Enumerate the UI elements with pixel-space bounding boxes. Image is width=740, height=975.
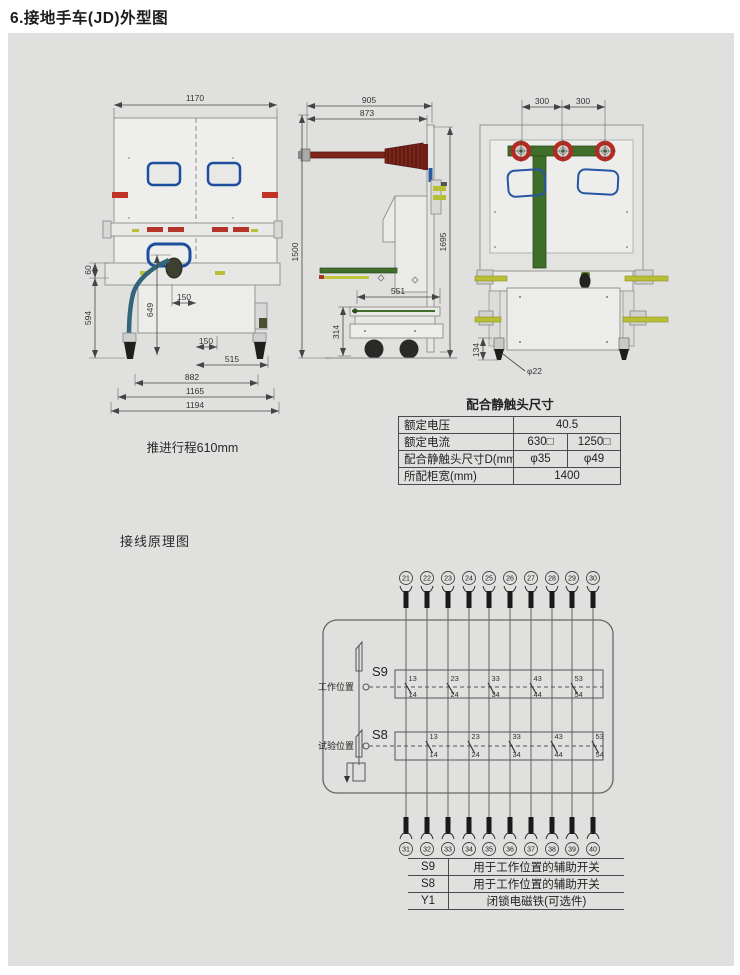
plug-pin xyxy=(446,817,451,834)
dimension-label: 60 xyxy=(83,265,93,275)
wheel-right xyxy=(254,342,266,359)
travel-caption: 推进行程610mm xyxy=(85,437,300,456)
plug-pin xyxy=(446,591,451,608)
s9-pivot xyxy=(363,684,369,690)
contact-terminal-top: 33 xyxy=(513,732,521,741)
work-position-label: 工作位置 xyxy=(318,681,354,692)
row-value: 1400 xyxy=(514,468,621,485)
front-body xyxy=(103,118,282,359)
terminal-number: 40 xyxy=(589,847,597,854)
wiring-schematic: S9 S8 工作位置 试验位置 213122322333243425352636… xyxy=(320,565,620,865)
plug-pin xyxy=(508,817,513,834)
wheel-front xyxy=(365,340,384,359)
dimension-label: 594 xyxy=(83,311,93,325)
terminal-bottom: 32 xyxy=(421,817,434,856)
contact-table-section: 配合静触头尺寸 额定电压 40.5 额定电流 630□ 1250□ 配合静触头尺… xyxy=(398,394,622,485)
position-mechanism xyxy=(344,642,369,783)
legend-code: Y1 xyxy=(408,893,449,910)
dimension-label: 1170 xyxy=(186,93,205,103)
contact-terminal-top: 23 xyxy=(451,674,459,683)
terminal-number: 21 xyxy=(402,576,410,583)
terminal-top: 28 xyxy=(546,572,559,609)
legend-desc: 用于工作位置的辅助开关 xyxy=(449,859,625,876)
wheel-left xyxy=(124,342,136,359)
contact-rollers xyxy=(510,140,616,162)
chassis-band xyxy=(105,263,280,285)
legend-row: S9 用于工作位置的辅助开关 xyxy=(408,859,624,876)
terminal-bottom: 31 xyxy=(400,817,413,856)
terminal-number: 34 xyxy=(465,847,473,854)
s8-label: S8 xyxy=(372,727,388,742)
base-frame xyxy=(350,324,443,338)
table-row: 配合静触头尺寸D(mm) φ35 φ49 xyxy=(399,451,621,468)
dimension-label: 150 xyxy=(199,336,213,346)
rear-body xyxy=(475,125,668,371)
terminal-number: 23 xyxy=(444,576,452,583)
dimension-label: 1194 xyxy=(186,400,205,410)
window-left xyxy=(148,163,180,185)
dimension-label: 314 xyxy=(331,325,341,339)
plug-pin xyxy=(508,591,513,608)
terminal-number: 37 xyxy=(527,847,535,854)
contact-terminal-bottom: 44 xyxy=(555,750,563,759)
plug-pin xyxy=(550,591,555,608)
row-value: φ35 xyxy=(514,451,568,468)
terminal-bottom: 35 xyxy=(483,817,496,856)
contact-terminal-top: 43 xyxy=(534,674,542,683)
ground-bar xyxy=(320,268,397,273)
plug-pin xyxy=(529,591,534,608)
dimension-label: 300 xyxy=(576,96,590,106)
terminal-number: 35 xyxy=(485,847,493,854)
terminal-top: 30 xyxy=(587,572,600,609)
terminal-number: 28 xyxy=(548,576,556,583)
terminal-number: 26 xyxy=(506,576,514,583)
terminal-number: 36 xyxy=(506,847,514,854)
terminal-top: 21 xyxy=(400,572,413,609)
row-value: 630□ xyxy=(514,434,568,451)
terminal-bottom: 38 xyxy=(546,817,559,856)
s8-pivot xyxy=(363,743,369,749)
legend-row: S8 用于工作位置的辅助开关 xyxy=(408,876,624,893)
row-value: φ49 xyxy=(568,451,621,468)
schematic-title: 接线原理图 xyxy=(120,531,190,550)
table-row: 额定电压 40.5 xyxy=(399,417,621,434)
aux-contact: 5354 xyxy=(592,732,604,759)
table-row: 所配柜宽(mm) 1400 xyxy=(399,468,621,485)
aux-contact: 4344 xyxy=(530,674,542,699)
terminal-number: 33 xyxy=(444,847,452,854)
plug-pin xyxy=(570,817,575,834)
contact-rod xyxy=(309,152,385,158)
terminal-number: 27 xyxy=(527,576,535,583)
plug-pin xyxy=(404,817,409,834)
terminal-bottom: 34 xyxy=(463,817,476,856)
terminals: 2131223223332434253526362737283829393040 xyxy=(400,572,600,856)
dimension-label: 649 xyxy=(145,303,155,317)
dimension-label: 905 xyxy=(362,95,376,105)
lower-door xyxy=(507,288,620,350)
plug-pin xyxy=(570,591,575,608)
terminal-number: 29 xyxy=(568,576,576,583)
window-right xyxy=(208,163,240,185)
terminal-bottom: 36 xyxy=(504,817,517,856)
plug-pin xyxy=(591,591,596,608)
contact-terminal-bottom: 34 xyxy=(492,690,500,699)
contact-terminal-bottom: 34 xyxy=(513,750,521,759)
contact-terminal-bottom: 14 xyxy=(409,690,417,699)
side-body xyxy=(298,125,457,359)
dimension-label: 1500 xyxy=(290,242,300,261)
contact-terminal-top: 13 xyxy=(409,674,417,683)
plug-pin xyxy=(550,817,555,834)
contact-terminal-bottom: 54 xyxy=(575,690,583,699)
dimension-label: 300 xyxy=(535,96,549,106)
plug-pin xyxy=(467,817,472,834)
y1-magnet xyxy=(353,763,365,781)
dimension-label: 515 xyxy=(225,354,239,364)
contact-terminal-top: 53 xyxy=(596,732,604,741)
terminal-top: 22 xyxy=(421,572,434,609)
legend-table: S9 用于工作位置的辅助开关 S8 用于工作位置的辅助开关 Y1 闭锁电磁铁(可… xyxy=(408,858,624,910)
terminal-top: 25 xyxy=(483,572,496,609)
contact-table: 额定电压 40.5 额定电流 630□ 1250□ 配合静触头尺寸D(mm) φ… xyxy=(398,416,621,485)
terminal-top: 23 xyxy=(442,572,455,609)
test-position-label: 试验位置 xyxy=(318,740,354,751)
terminal-number: 30 xyxy=(589,576,597,583)
contact-terminal-top: 23 xyxy=(472,732,480,741)
side-view-drawing: 90587315001695551314 xyxy=(295,92,465,382)
handle-hole xyxy=(580,273,591,289)
terminal-number: 38 xyxy=(548,847,556,854)
aux-contact: 4344 xyxy=(551,732,563,759)
terminal-top: 27 xyxy=(525,572,538,609)
plug-pin xyxy=(467,591,472,608)
front-panel xyxy=(114,118,277,270)
plug-pin xyxy=(487,591,492,608)
row-label: 所配柜宽(mm) xyxy=(399,468,514,485)
contact-terminal-top: 33 xyxy=(492,674,500,683)
plug-pin xyxy=(529,817,534,834)
caster-diameter-label: φ22 xyxy=(527,366,542,376)
plug-pin xyxy=(425,591,430,608)
terminal-bottom: 33 xyxy=(442,817,455,856)
wire-columns xyxy=(406,608,593,817)
plug-pin xyxy=(425,817,430,834)
dimension-label: 551 xyxy=(391,286,405,296)
travel-arrow-icon xyxy=(344,776,350,783)
aux-contact: 2324 xyxy=(447,674,459,699)
row-value: 40.5 xyxy=(514,417,621,434)
legend-desc: 闭锁电磁铁(可选件) xyxy=(449,893,625,910)
plug-pin xyxy=(487,817,492,834)
s9-label: S9 xyxy=(372,664,388,679)
contact-terminal-bottom: 24 xyxy=(472,750,480,759)
table-row: 额定电流 630□ 1250□ xyxy=(399,434,621,451)
schematic-frame xyxy=(323,620,613,793)
red-label-right xyxy=(262,192,278,198)
lower-panel xyxy=(138,285,255,333)
row-label: 额定电流 xyxy=(399,434,514,451)
terminal-number: 31 xyxy=(402,847,410,854)
aux-contact: 2324 xyxy=(468,732,480,759)
terminal-number: 22 xyxy=(423,576,431,583)
terminal-top: 29 xyxy=(566,572,579,609)
aux-contact: 5354 xyxy=(571,674,583,699)
red-label-left xyxy=(112,192,128,198)
terminal-number: 39 xyxy=(568,847,576,854)
contact-table-title: 配合静触头尺寸 xyxy=(398,394,622,413)
row-label: 配合静触头尺寸D(mm) xyxy=(399,451,514,468)
contact-terminal-bottom: 54 xyxy=(596,750,604,759)
legend-desc: 用于工作位置的辅助开关 xyxy=(449,876,625,893)
terminal-number: 24 xyxy=(465,576,473,583)
caster-left xyxy=(494,349,504,360)
row-value: 1250□ xyxy=(568,434,621,451)
terminal-bottom: 39 xyxy=(566,817,579,856)
aux-contact: 1314 xyxy=(405,674,417,699)
page-title: 6.接地手车(JD)外型图 xyxy=(10,6,168,28)
wheel-back xyxy=(400,340,419,359)
contact-terminal-bottom: 14 xyxy=(430,750,438,759)
legend-row: Y1 闭锁电磁铁(可选件) xyxy=(408,893,624,910)
caster-right xyxy=(619,349,629,360)
dimension-label: 1695 xyxy=(438,232,448,251)
contact-terminal-bottom: 44 xyxy=(534,690,542,699)
dimension-label: 882 xyxy=(185,372,199,382)
dimension-label: 1165 xyxy=(186,386,205,396)
terminal-top: 24 xyxy=(463,572,476,609)
plug-pin xyxy=(404,591,409,608)
terminal-number: 25 xyxy=(485,576,493,583)
front-view-drawing: 11706059464915015051588211651194 xyxy=(85,88,300,448)
rear-view-drawing: 300300134φ22 xyxy=(475,92,675,422)
leader-line xyxy=(503,354,525,371)
legend-code: S8 xyxy=(408,876,449,893)
terminal-bottom: 40 xyxy=(587,817,600,856)
contact-terminal-top: 13 xyxy=(430,732,438,741)
legend-code: S9 xyxy=(408,859,449,876)
contact-terminal-top: 53 xyxy=(575,674,583,683)
dimension-label: 873 xyxy=(360,108,374,118)
row-label: 额定电压 xyxy=(399,417,514,434)
terminal-number: 32 xyxy=(423,847,431,854)
aux-contact: 3334 xyxy=(488,674,500,699)
terminal-bottom: 37 xyxy=(525,817,538,856)
dimension-label: 150 xyxy=(177,292,191,302)
aux-contact: 3334 xyxy=(509,732,521,759)
aux-contact: 1314 xyxy=(426,732,438,759)
contact-terminal-bottom: 24 xyxy=(451,690,459,699)
plug-pin xyxy=(591,817,596,834)
trolley-column xyxy=(395,196,427,292)
terminal-top: 26 xyxy=(504,572,517,609)
dimension-label: 134 xyxy=(471,343,481,357)
contact-terminal-top: 43 xyxy=(555,732,563,741)
